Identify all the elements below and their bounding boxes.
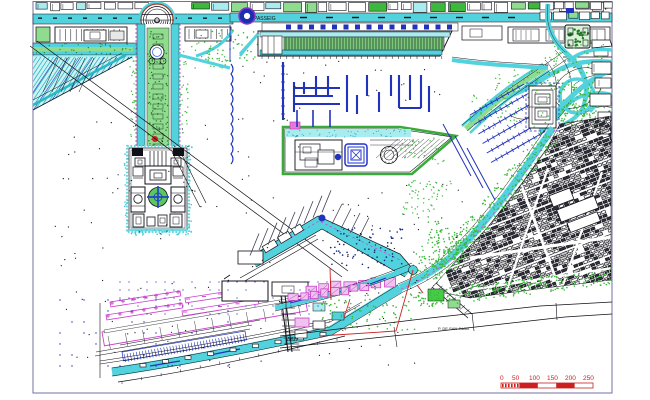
svg-text:ΔΔΔ: ΔΔΔ [287, 337, 298, 343]
svg-text:150: 150 [547, 375, 558, 382]
svg-text:250: 250 [583, 375, 594, 382]
svg-text:100: 100 [529, 375, 540, 382]
svg-text:P. DE SAN JUAN: P. DE SAN JUAN [438, 326, 469, 331]
svg-text:0: 0 [500, 375, 504, 382]
svg-text:200: 200 [565, 375, 576, 382]
svg-text:PASSEIG: PASSEIG [254, 16, 276, 22]
svg-text:50: 50 [512, 375, 520, 382]
